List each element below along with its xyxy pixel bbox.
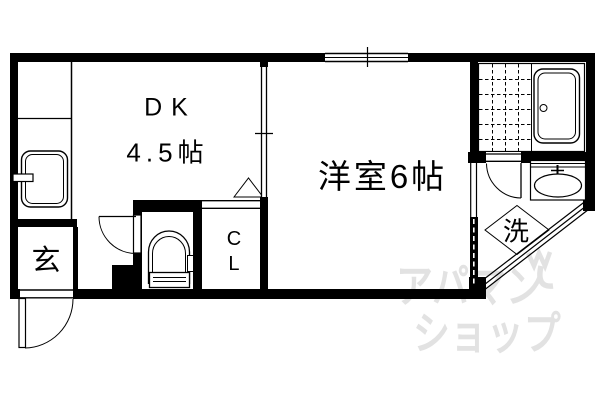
toilet-door <box>99 215 141 254</box>
label-closet-l: L <box>227 252 241 277</box>
bathroom <box>479 64 585 152</box>
label-dk-area: 4.5帖 <box>121 133 208 170</box>
washroom-opening <box>471 163 477 284</box>
bathtub-icon <box>534 69 580 143</box>
entrance-door <box>19 289 73 348</box>
kitchen-sink <box>13 151 68 207</box>
floorplan: アパマン ショップ <box>0 0 600 400</box>
sliding-partition <box>255 67 273 197</box>
bathroom-door <box>486 152 521 198</box>
label-closet: C L <box>227 227 241 277</box>
label-closet-c: C <box>227 227 241 252</box>
closet-front <box>202 178 263 209</box>
label-laundry: 洗 <box>503 212 529 249</box>
washbasin-icon <box>531 161 586 201</box>
tile-floor <box>479 64 531 151</box>
label-entrance: 玄 <box>31 237 60 279</box>
diagonal-wall <box>477 200 593 291</box>
faucet-icon <box>13 174 33 182</box>
toilet-icon <box>149 231 194 288</box>
label-dk: DK <box>135 94 197 123</box>
window <box>325 47 408 67</box>
label-western-room: 洋室6帖 <box>315 150 447 198</box>
closet-door-triangle <box>234 178 263 197</box>
